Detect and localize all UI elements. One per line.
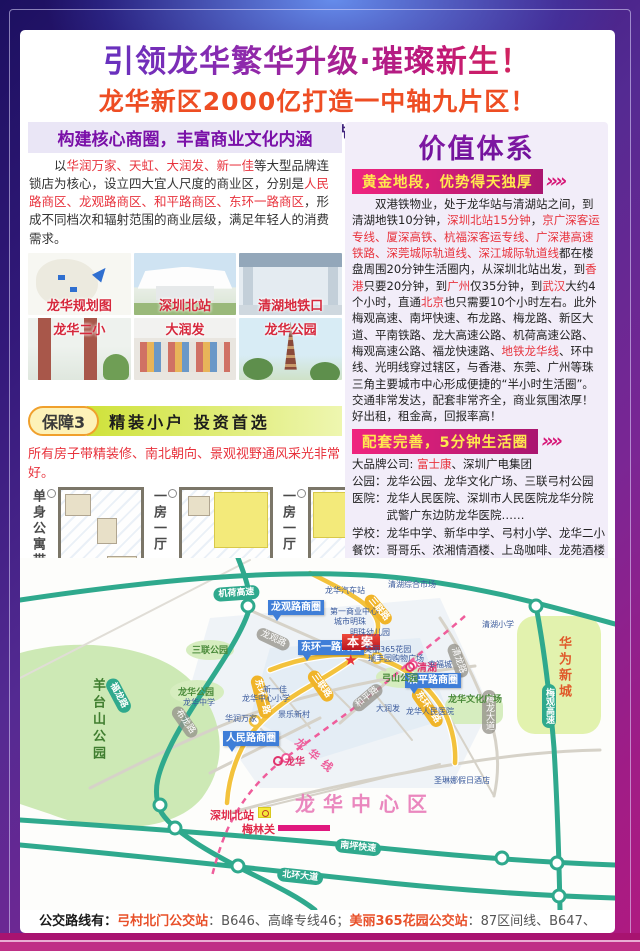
text-run: 美丽365花园公交站 [349, 914, 467, 929]
guarantee-title: 精装小户 投资首选 [87, 406, 342, 436]
text-run: 北京 [421, 295, 444, 309]
photo-label: 深圳北站 [134, 295, 237, 314]
section-title-business: 构建核心商圈，丰富商业文化内涵 [28, 122, 342, 153]
photo-qinghu-metro-entrance: 清湖地铁口 [239, 253, 342, 315]
banner-golden-location: 黄金地段，优势得天独厚 »» [352, 169, 601, 194]
guarantee-row: 保障3 精装小户 投资首选 [28, 406, 342, 436]
tree-shape [243, 358, 273, 380]
map-label: 城市明珠 [334, 616, 366, 627]
text-run: 仅35分钟，到 [470, 279, 542, 293]
map-label: 龙华文化广场 [448, 692, 502, 705]
location-map: 机荷高速福龙路梅观高速南坪快速北环大道三联路三联路东环一路东环一路龙观路和平路清… [20, 558, 615, 910]
tree-shape [103, 354, 129, 380]
map-label: 大润发 [376, 703, 400, 714]
map-label: 龙华汽车站 [325, 585, 365, 596]
bathroom-shape [65, 494, 91, 516]
map-label: 新一佳 [263, 684, 287, 695]
map-label: 龙华中学 [183, 697, 215, 708]
text-run: 以 [54, 158, 67, 173]
text-run: 只要20分钟，到 [364, 279, 448, 293]
text-run: 公交路线有： [39, 914, 117, 929]
text-run: ：B646、高峰专线46； [208, 914, 349, 929]
map-label: 羊台山公园 [88, 678, 107, 763]
text-run: 武汉 [542, 279, 565, 293]
table-shape [97, 518, 117, 544]
map-label: 华为新城 [554, 636, 573, 700]
map-label: 人民路商圈 [223, 731, 279, 746]
golden-location-paragraph: 双港铁物业，处于龙华站与清湖站之间，到清湖地铁10分钟，深圳北站15分钟，京广深… [352, 196, 601, 425]
chevrons-icon: »» [546, 172, 565, 191]
map-label: 瑞丰园购物广场 [368, 653, 424, 664]
business-intro-paragraph: 以华润万家、天虹、大润发、新一佳等大型品牌连锁店为核心，设立四大宜人尺度的商业区… [29, 157, 341, 248]
photo-label: 龙华公园 [239, 319, 342, 338]
facility-rest: 、深圳广电集团 [452, 457, 533, 471]
main-title: 引领龙华繁华升级·璀璨新生！ [20, 36, 615, 81]
text-run: 弓村北门公交站 [117, 914, 208, 929]
map-label: ★ [344, 651, 357, 669]
photo-rt-mart: 大润发 [134, 318, 237, 380]
photo-label: 龙华规划图 [28, 295, 131, 314]
text-run: 地铁龙华线 [502, 344, 560, 358]
photo-label: 龙华二小 [28, 319, 131, 338]
north-station-icon [258, 807, 271, 818]
facility-line-company: 大品牌公司: 富士康、深圳广电集团 [352, 456, 601, 473]
text-run: 深圳北站15分钟 [447, 213, 531, 227]
text-run: ， [531, 213, 543, 227]
map-label: 华润万家 [225, 713, 257, 724]
photo-shenzhen-north-station: 深圳北站 [134, 253, 237, 315]
left-column: 构建核心商圈，丰富商业文化内涵 以华润万家、天虹、大润发、新一佳等大型品牌连锁店… [28, 122, 342, 617]
facility-line: 公园：龙华公园、龙华文化广场、三联弓村公园 [352, 473, 601, 490]
facility-label: 大品牌公司: [352, 457, 417, 471]
bus-routes: 公交路线有：弓村北门公交站：B646、高峰专线46；美丽365花园公交站：87区… [32, 912, 603, 933]
facility-line: 医院：龙华人民医院、深圳市人民医院龙华分院 [352, 490, 601, 507]
guarantee-badge: 保障3 [28, 406, 99, 436]
map-label: 龙华 [273, 753, 305, 768]
storefront-shape [140, 342, 231, 372]
chevrons-icon: »» [541, 432, 560, 451]
map-label: 圣琳娜假日酒店 [434, 775, 490, 786]
photo-longhua-plan-map: 龙华规划图 [28, 253, 131, 315]
bullet-ring-icon [297, 489, 306, 498]
facility-highlight: 富士康 [417, 457, 452, 471]
map-label: 景乐新村 [278, 709, 310, 720]
floorplan-label-text: 一房一厅 [151, 489, 166, 553]
guarantee-note: 所有房子带精装修、南北朝向、景观视野通风采光非常好。 [28, 443, 342, 481]
photo-longhua-second-primary: 龙华二小 [28, 318, 131, 380]
bottom-stripe-mid [0, 942, 640, 951]
map-label: 幸福城 [428, 659, 452, 670]
flyer-sheet: 引领龙华繁华升级·璀璨新生！ 龙华新区2000亿打造一中轴九片区！ 10分钟地铁… [20, 30, 615, 933]
map-label: 龙华人民医院 [406, 706, 454, 717]
bathroom-shape [188, 496, 210, 516]
bullet-ring-icon [47, 489, 56, 498]
bedroom-shape [214, 492, 268, 548]
sub-title: 龙华新区2000亿打造一中轴九片区！ [20, 82, 615, 118]
map-label: 清湖小学 [482, 619, 514, 630]
map-dot [70, 287, 77, 292]
facility-line: 餐饮：哥哥乐、浓湘情酒楼、上岛咖啡、龙苑酒楼 [352, 542, 601, 559]
map-label: 清湖综合市场 [388, 579, 436, 590]
banner-text: 黄金地段，优势得天独厚 [352, 169, 543, 194]
meilin-checkpoint-bar [278, 825, 330, 831]
map-label: 龙华中心区 [295, 788, 435, 817]
text-run: 华润万家、天虹、大润发、新一佳 [67, 158, 255, 173]
photo-longhua-park: 龙华公园 [239, 318, 342, 380]
photo-label: 大润发 [134, 319, 237, 338]
facility-line: 武警广东边防龙华医院…… [352, 507, 601, 524]
map-dot [58, 275, 65, 280]
map-label: 龙观路商圈 [268, 600, 324, 615]
text-run: 广州 [447, 279, 470, 293]
photo-grid: 龙华规划图 深圳北站 清湖地铁口 龙华二小 [28, 253, 342, 380]
tree-shape [310, 362, 340, 380]
banner-text: 配套完善，5分钟生活圈 [352, 429, 538, 454]
facility-line: 学校：龙华中学、新华中学、弓村小学、龙华二小 [352, 525, 601, 542]
photo-label: 清湖地铁口 [239, 295, 342, 314]
map-label: 梅林关 [242, 821, 275, 837]
map-label: 三联公园 [192, 643, 228, 656]
banner-amenities: 配套完善，5分钟生活圈 »» [352, 429, 601, 454]
bullet-ring-icon [168, 489, 177, 498]
value-system-title: 价值体系 [352, 127, 601, 166]
bottom-stripe-dark [0, 933, 640, 940]
map-label: 明珠幼儿园 [350, 627, 390, 638]
floorplan-label-text: 一房一厅 [280, 489, 295, 553]
